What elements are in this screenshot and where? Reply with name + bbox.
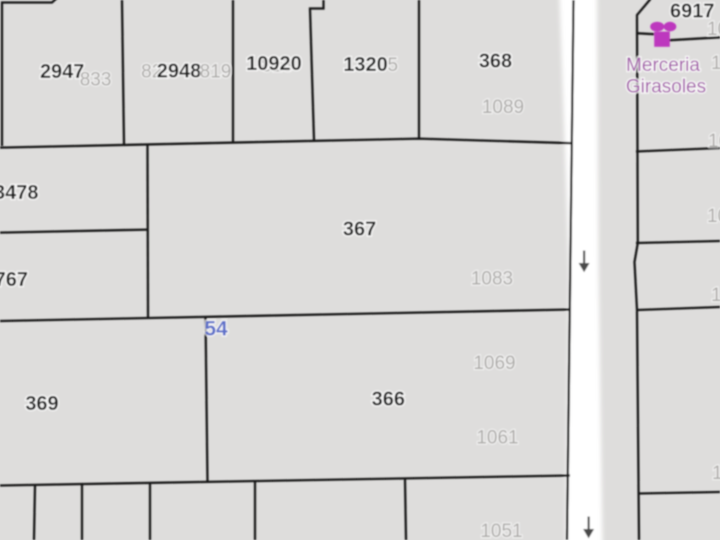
svg-text:1069: 1069: [473, 353, 515, 374]
svg-text:5: 5: [388, 55, 399, 76]
svg-text:367: 367: [343, 218, 376, 240]
svg-text:16: 16: [711, 53, 720, 74]
svg-text:366: 366: [372, 388, 405, 410]
svg-text:819: 819: [200, 62, 232, 83]
svg-text:54: 54: [204, 318, 228, 341]
svg-text:16: 16: [711, 285, 720, 306]
svg-text:2948: 2948: [157, 61, 202, 83]
svg-text:767: 767: [0, 269, 28, 291]
svg-text:833: 833: [80, 70, 112, 91]
svg-text:Merceria: Merceria: [626, 55, 700, 76]
svg-text:1089: 1089: [482, 97, 524, 118]
svg-text:2947: 2947: [40, 61, 85, 83]
svg-text:16: 16: [708, 131, 720, 152]
svg-text:369: 369: [25, 393, 58, 415]
svg-text:1051: 1051: [480, 521, 522, 540]
svg-text:368: 368: [479, 51, 512, 73]
svg-text:1320: 1320: [343, 54, 388, 76]
svg-text:1061: 1061: [476, 428, 518, 449]
svg-text:10920: 10920: [246, 53, 302, 75]
svg-text:10: 10: [707, 19, 720, 40]
svg-text:Girasoles: Girasoles: [626, 77, 706, 98]
svg-text:16: 16: [712, 463, 720, 484]
svg-text:10: 10: [707, 206, 720, 227]
svg-text:1083: 1083: [471, 268, 513, 289]
svg-text:3478: 3478: [0, 182, 39, 204]
